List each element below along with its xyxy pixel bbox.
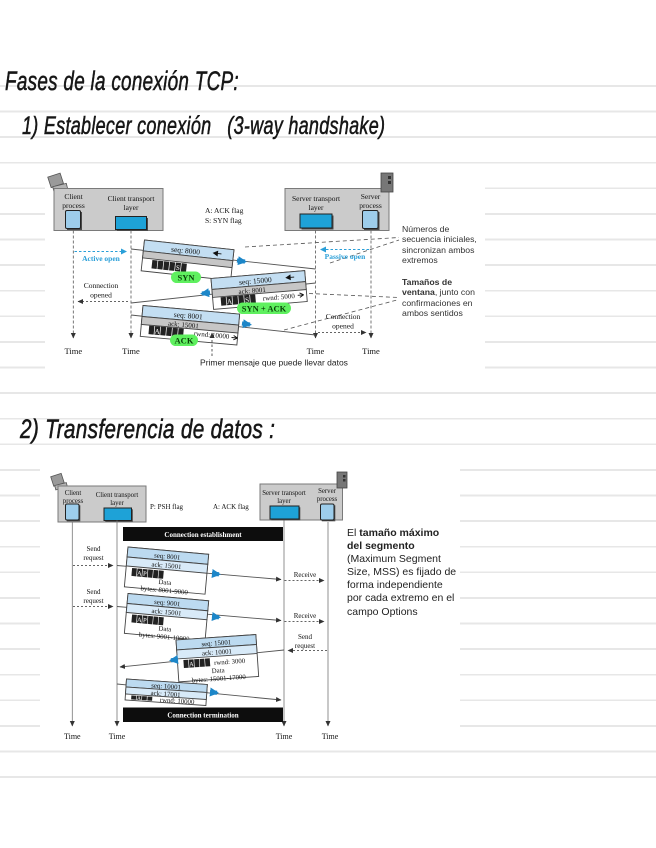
svg-text:Client transport: Client transport	[96, 492, 139, 499]
svg-text:A: A	[137, 696, 141, 702]
svg-text:Primer mensaje que puede lleva: Primer mensaje que puede llevar datos	[200, 358, 348, 368]
svg-text:Client: Client	[65, 490, 82, 497]
svg-text:Time: Time	[322, 732, 339, 741]
svg-text:SYN: SYN	[177, 273, 195, 283]
svg-text:Client: Client	[64, 192, 83, 201]
svg-text:process: process	[359, 201, 382, 210]
svg-text:Server: Server	[318, 488, 336, 495]
svg-text:rwnd: 10000: rwnd: 10000	[160, 697, 196, 706]
svg-text:Receive: Receive	[294, 571, 317, 579]
svg-text:Connection termination: Connection termination	[167, 712, 238, 720]
svg-text:process: process	[62, 201, 85, 210]
svg-text:Time: Time	[109, 732, 126, 741]
svg-text:Connection: Connection	[84, 281, 119, 290]
svg-text:A: A	[137, 570, 143, 577]
svg-text:Time: Time	[122, 346, 140, 356]
svg-text:Time: Time	[64, 346, 82, 356]
svg-text:Time: Time	[64, 732, 81, 741]
svg-text:Server transport: Server transport	[262, 490, 306, 497]
svg-text:Data: Data	[158, 625, 171, 633]
svg-text:A: ACK flag: A: ACK flag	[213, 503, 249, 511]
svg-text:ACK: ACK	[175, 336, 194, 346]
svg-text:Data: Data	[158, 579, 171, 587]
svg-text:request: request	[295, 642, 315, 650]
svg-text:request: request	[83, 554, 103, 562]
svg-text:opened: opened	[90, 291, 112, 300]
svg-text:Receive: Receive	[294, 612, 317, 620]
svg-text:A: ACK flag: A: ACK flag	[205, 206, 244, 215]
svg-text:A: A	[227, 298, 233, 306]
svg-text:Time: Time	[362, 346, 380, 356]
svg-text:opened: opened	[332, 322, 354, 331]
svg-text:Connection: Connection	[326, 312, 361, 321]
svg-text:Send: Send	[87, 588, 102, 596]
svg-text:Data: Data	[212, 667, 225, 675]
svg-text:Active open: Active open	[82, 254, 121, 263]
svg-text:A: A	[154, 327, 160, 335]
svg-text:Send: Send	[87, 545, 102, 553]
svg-text:SYN + ACK: SYN + ACK	[242, 304, 287, 314]
svg-text:Server transport: Server transport	[292, 194, 341, 203]
svg-text:Client transport: Client transport	[108, 194, 156, 203]
svg-text:layer: layer	[277, 498, 291, 505]
svg-text:layer: layer	[309, 203, 324, 212]
svg-text:S: SYN flag: S: SYN flag	[205, 216, 242, 225]
svg-text:Connection establishment: Connection establishment	[164, 531, 242, 539]
svg-text:Send: Send	[298, 633, 313, 641]
svg-text:Passive open: Passive open	[325, 252, 366, 261]
svg-text:P: PSH flag: P: PSH flag	[150, 503, 184, 511]
svg-text:layer: layer	[124, 203, 139, 212]
svg-text:Time: Time	[276, 732, 293, 741]
svg-text:Time: Time	[307, 346, 325, 356]
svg-text:request: request	[83, 597, 103, 605]
svg-text:A: A	[189, 661, 194, 668]
svg-text:A: A	[137, 617, 143, 624]
svg-text:process: process	[317, 496, 338, 503]
svg-text:layer: layer	[110, 500, 124, 507]
svg-text:Server: Server	[361, 192, 381, 201]
